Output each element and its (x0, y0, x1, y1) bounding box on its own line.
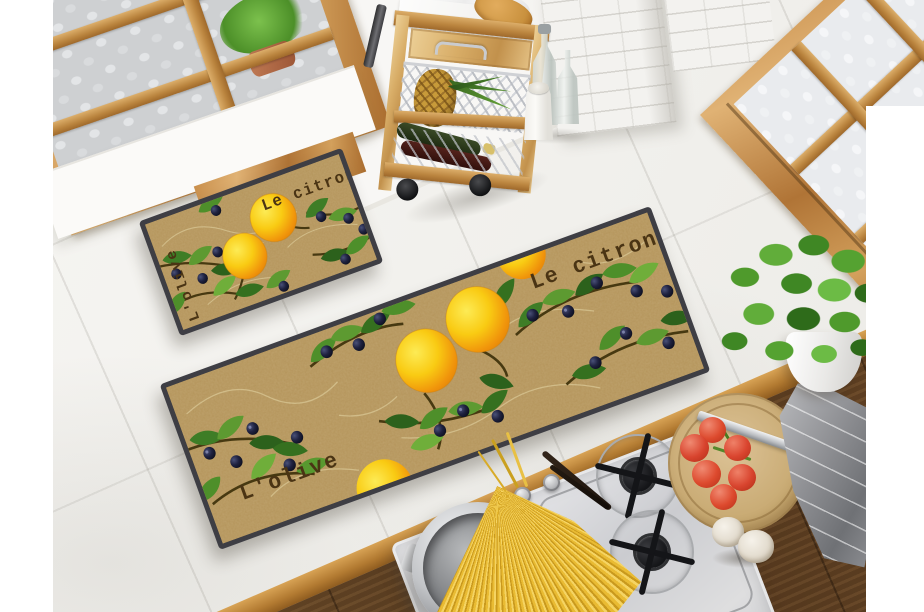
bottle-clasp (538, 24, 551, 34)
caster-wheel (395, 177, 419, 201)
kitchen-photo: Le citron L'olive (0, 0, 924, 612)
milk-bottle-cap (528, 82, 549, 94)
photo-margin-left (0, 0, 53, 612)
photo-margin-right (866, 106, 924, 612)
tomato (724, 435, 751, 461)
tomato (680, 434, 709, 462)
stove-knob (543, 474, 560, 491)
garlic-bulb (738, 530, 774, 563)
tomato (710, 484, 737, 510)
basil-plant (714, 226, 886, 386)
kitchen-cart (377, 0, 550, 213)
tomato (692, 460, 721, 488)
